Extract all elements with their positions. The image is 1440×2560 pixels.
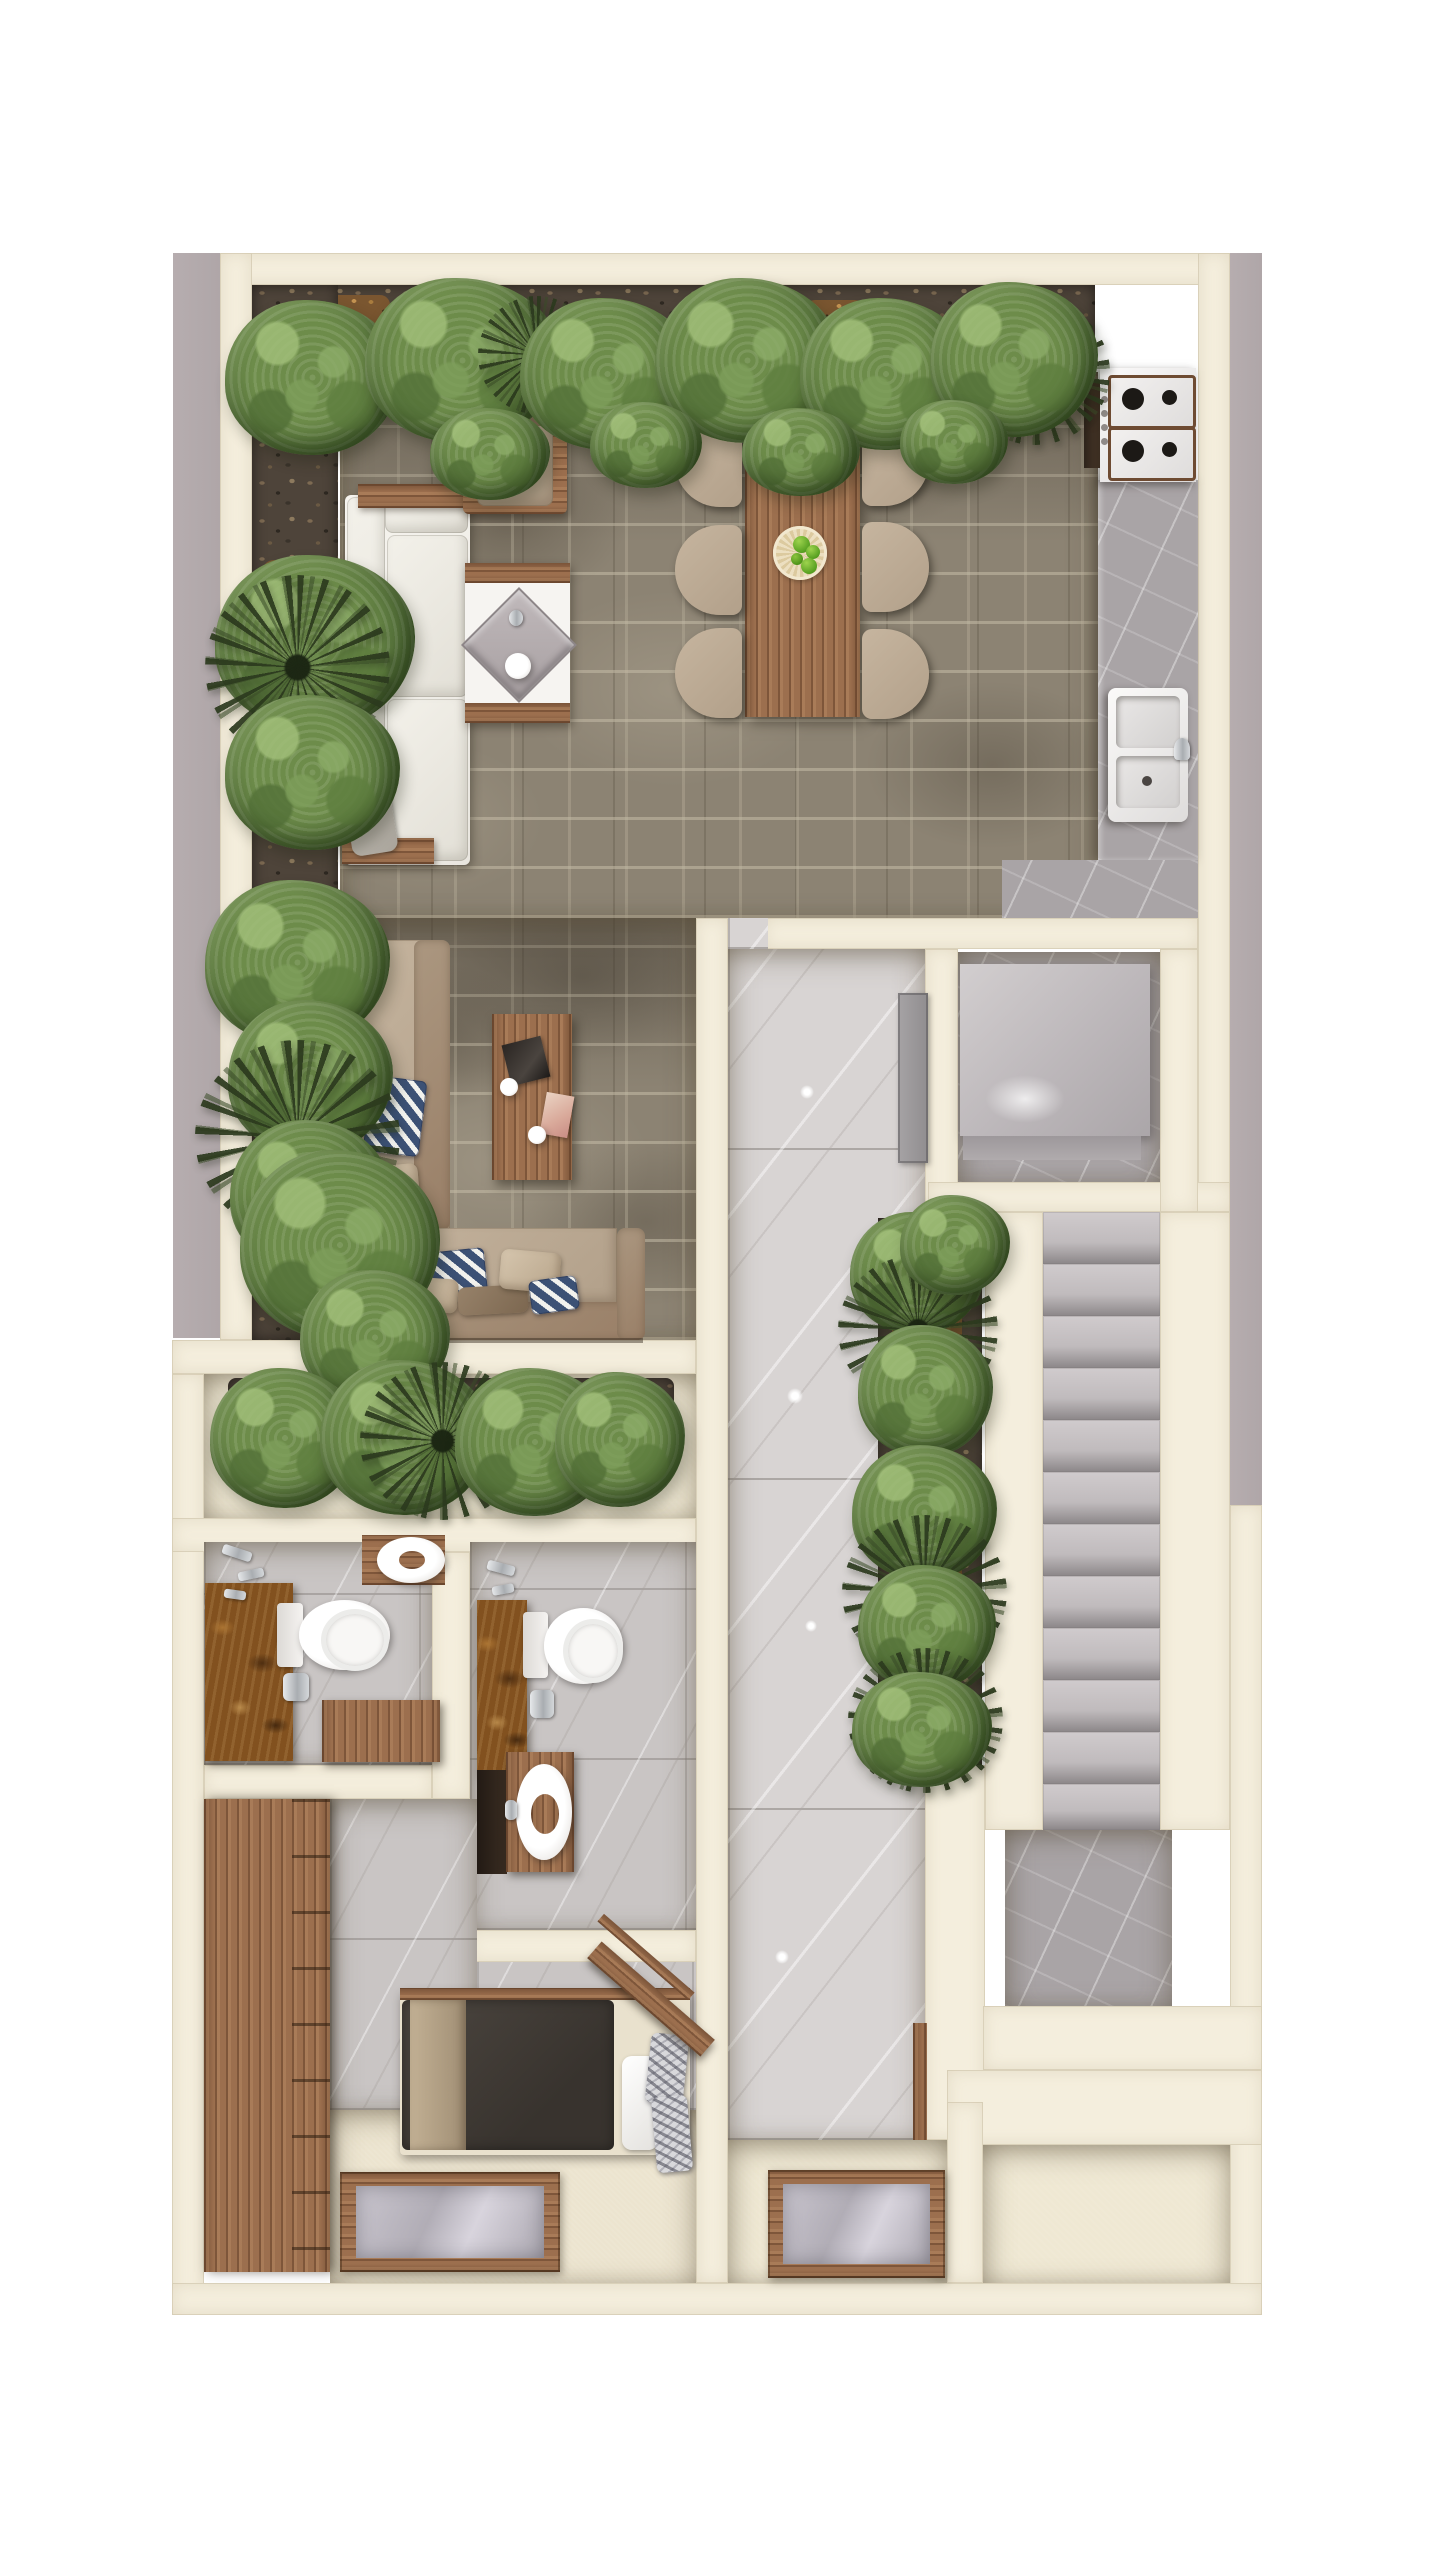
wall-bath-a-bottom: [204, 1765, 432, 1799]
floor-plan-canvas: [0, 0, 1440, 2560]
stove-knob-4: [1101, 438, 1108, 445]
fire-table-faucet: [509, 610, 523, 626]
utility-cabinet-shadow: [963, 1136, 1141, 1160]
hall-bush: [852, 1672, 992, 1787]
sectional-armrest-right: [617, 1228, 645, 1340]
stove-knob-2: [1101, 410, 1108, 417]
stair-step: [1043, 1784, 1160, 1830]
garden-bush: [555, 1372, 685, 1507]
wall-utility-right: [1160, 949, 1198, 1212]
wall-room-br-left: [947, 2102, 983, 2283]
toilet-seat: [321, 1609, 389, 1671]
wall-landing-south: [983, 2006, 1262, 2070]
burner-4: [1162, 442, 1177, 457]
stair-step: [1043, 1628, 1160, 1680]
sink-basin-upper: [1116, 696, 1180, 748]
stair-step: [1043, 1524, 1160, 1576]
kitchen-floor-patch: [1002, 860, 1198, 918]
white-sofa-seat-2: [387, 699, 468, 861]
stair-step: [1043, 1472, 1160, 1524]
hedge-spill: [900, 400, 1008, 484]
hall-skylight-edge: [913, 2023, 927, 2140]
sink-faucet: [1174, 738, 1190, 760]
cooktop-grate-upper: [1108, 375, 1196, 429]
green-apple-4: [801, 558, 817, 574]
fire-table-bowl: [505, 653, 531, 679]
bed-pillow-pattern-2: [651, 2095, 693, 2174]
cooktop-grate-lower: [1108, 427, 1196, 481]
wall-utility-left: [925, 949, 958, 1212]
bath-b-sink-faucet: [505, 1800, 517, 1820]
bath-b-toilet: [523, 1608, 623, 1684]
wall-stairs-right: [1160, 1212, 1230, 1830]
coffee-cup-2: [528, 1126, 546, 1144]
burner-2: [1162, 390, 1177, 405]
tile-sparkle-1: [800, 1085, 814, 1099]
stair-step: [1043, 1680, 1160, 1732]
stair-step: [1043, 1420, 1160, 1472]
green-apple-2: [806, 545, 820, 559]
exterior-band-right: [1230, 253, 1262, 1505]
bath-b-sink-hole: [531, 1794, 559, 1834]
bath-a-tp-holder: [283, 1673, 309, 1701]
stair-step: [1043, 1316, 1160, 1368]
stair-landing: [1005, 1830, 1172, 2006]
toilet-seat: [563, 1619, 623, 1683]
tile-sparkle-2: [787, 1388, 803, 1404]
bath-b-vanity-wall: [477, 1600, 527, 1775]
pillow-navy-4: [528, 1275, 580, 1315]
hedge-spill: [430, 408, 550, 500]
lower-right-floor: [983, 2145, 1230, 2283]
bath-b-tp-holder: [530, 1690, 554, 1718]
bath-a-door-panel: [322, 1700, 440, 1762]
wall-room-br-top: [947, 2070, 1262, 2145]
stair-step: [1043, 1368, 1160, 1420]
wall-plan-bottom: [172, 2283, 1262, 2315]
wall-left-lower: [172, 1374, 204, 2315]
stove-knob-3: [1101, 424, 1108, 431]
utility-cabinet-highlight: [985, 1075, 1065, 1123]
hedge-spill: [590, 402, 702, 488]
utility-door: [898, 993, 928, 1163]
hall-bush: [858, 1325, 993, 1457]
utility-corner-bush: [900, 1195, 1010, 1295]
tile-sparkle-4: [775, 1950, 789, 1964]
fire-table-wood-bottom: [465, 703, 570, 723]
stair-step: [1043, 1576, 1160, 1628]
coffee-cup-1: [500, 1078, 518, 1096]
stair-step: [1043, 1212, 1160, 1264]
hall-doorway-threshold: [728, 918, 768, 949]
tile-sparkle-3: [805, 1620, 817, 1632]
hedge-spill: [742, 408, 860, 496]
stair-step: [1043, 1264, 1160, 1316]
bath-b-shower-niche: [477, 1770, 507, 1874]
bath-a-toilet: [277, 1600, 390, 1670]
burner-1: [1122, 388, 1144, 410]
stair-step: [1043, 1732, 1160, 1784]
wall-bath-b-bottom: [470, 1930, 696, 1962]
fire-table-wood-top: [465, 563, 570, 583]
left-bush: [225, 695, 400, 850]
wall-right-lower: [1230, 1505, 1262, 2315]
bath-a-basin-hole: [399, 1551, 425, 1569]
wardrobe-shelf-lines: [292, 1799, 330, 2272]
bed-throw: [410, 2000, 466, 2150]
wall-hall-left-vertical: [696, 918, 728, 2283]
sink-drain: [1142, 776, 1152, 786]
skylight-entry-glass: [783, 2184, 930, 2264]
skylight-bedroom-glass: [356, 2186, 544, 2258]
burner-3: [1122, 440, 1144, 462]
wall-living-hall-horizontal: [765, 918, 1198, 949]
